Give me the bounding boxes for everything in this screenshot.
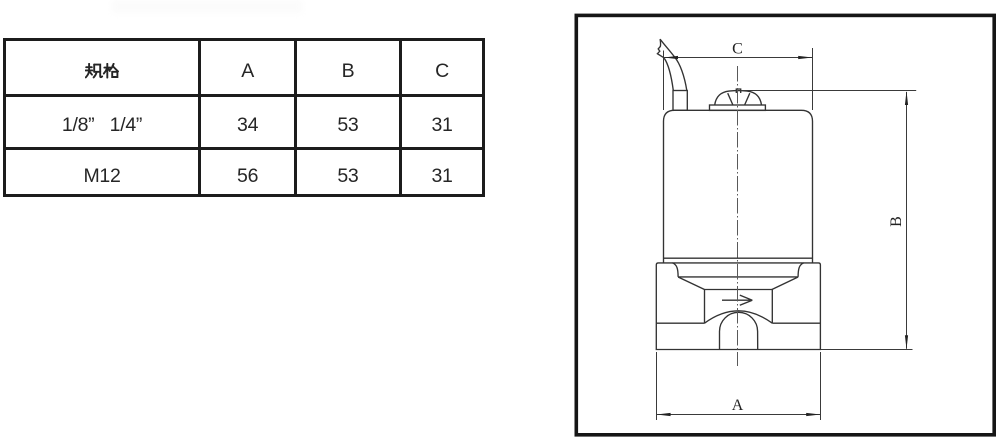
- svg-text:A: A: [732, 397, 744, 414]
- svg-text:C: C: [732, 41, 743, 58]
- svg-text:B: B: [888, 216, 905, 227]
